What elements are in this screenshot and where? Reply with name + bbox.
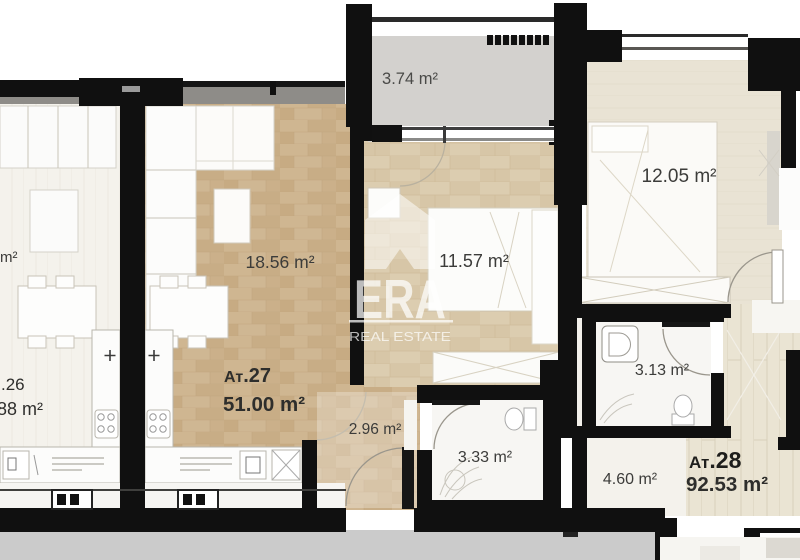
svg-text:18.56 m²: 18.56 m²: [245, 252, 314, 272]
svg-text:REAL ESTATE: REAL ESTATE: [349, 329, 451, 344]
svg-text:92.53 m²: 92.53 m²: [686, 473, 768, 496]
svg-text:3.33 m²: 3.33 m²: [458, 449, 513, 466]
svg-text:88 m²: 88 m²: [0, 399, 43, 419]
svg-text:.26: .26: [1, 375, 25, 394]
svg-text:3.13 m²: 3.13 m²: [635, 362, 690, 379]
svg-text:m²: m²: [0, 249, 18, 266]
svg-text:3.74 m²: 3.74 m²: [382, 70, 438, 88]
svg-text:11.57 m²: 11.57 m²: [439, 251, 509, 271]
svg-text:Ат.27: Ат.27: [224, 365, 271, 387]
svg-text:2.96 m²: 2.96 m²: [349, 421, 402, 438]
svg-text:12.05 m²: 12.05 m²: [642, 166, 717, 187]
svg-text:4.60 m²: 4.60 m²: [603, 471, 658, 488]
svg-text:51.00 m²: 51.00 m²: [223, 393, 305, 416]
